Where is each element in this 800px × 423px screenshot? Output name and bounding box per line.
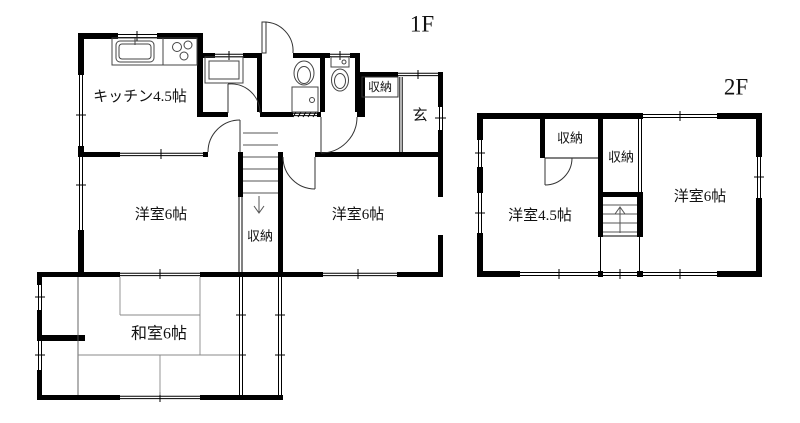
western-room-45-label: 洋室4.5帖 <box>508 207 572 224</box>
entrance-label: 玄 <box>412 107 427 124</box>
toilet-icon <box>331 57 349 91</box>
storage-b-label: 収納 <box>608 150 634 165</box>
storage-a-label: 収納 <box>557 131 583 146</box>
entrance-storage-label: 収納 <box>368 80 392 94</box>
floor-1f-label: 1F <box>410 12 434 37</box>
washstand-icon <box>205 57 243 83</box>
floor-2f-label: 2F <box>724 75 748 100</box>
sink-icon <box>116 38 154 62</box>
toilet-door <box>321 117 357 153</box>
floor-plan-drawing: 1F キッチン4.5帖 収納 玄 洋室6帖 収納 洋室6帖 和室6帖 <box>0 0 800 418</box>
washroom-door <box>228 84 260 113</box>
floor-2f: 2F 収納 収納 洋室4.5帖 洋室6帖 <box>475 75 764 280</box>
japanese-room-label: 和室6帖 <box>131 325 187 343</box>
kitchen-label: キッチン4.5帖 <box>93 88 187 105</box>
floor-1f: 1F キッチン4.5帖 収納 玄 洋室6帖 収納 洋室6帖 和室6帖 <box>35 12 446 403</box>
back-door <box>262 22 293 53</box>
stairs-up-icon <box>603 205 637 233</box>
stairs-down-icon <box>243 133 278 213</box>
left-room-door <box>208 120 240 152</box>
stairs-storage-label: 収納 <box>247 229 273 244</box>
floor-plan-page: 1F キッチン4.5帖 収納 玄 洋室6帖 収納 洋室6帖 和室6帖 <box>0 0 800 418</box>
closet-door-2f <box>545 158 572 185</box>
bathtub-icon <box>292 61 318 112</box>
right-room-door <box>283 157 315 189</box>
western-room-6-label: 洋室6帖 <box>674 188 727 205</box>
western-room-left-label: 洋室6帖 <box>135 206 188 223</box>
western-room-right-label: 洋室6帖 <box>332 206 385 223</box>
kitchen-counter-icon <box>112 38 197 65</box>
stove-icon <box>173 41 193 60</box>
